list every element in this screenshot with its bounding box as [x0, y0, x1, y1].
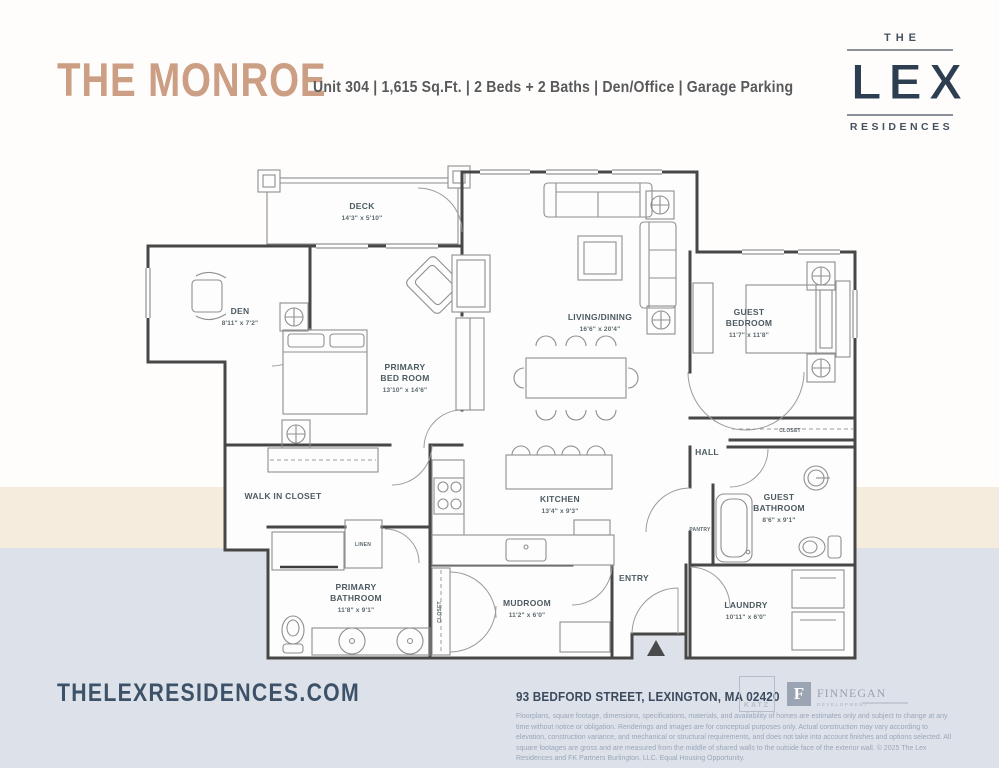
primary-bedroom-label-1: PRIMARY [385, 362, 426, 372]
primary-bed-icon [283, 330, 367, 414]
entry-arrow-icon [647, 640, 665, 656]
kitchen-dims: 13'4" x 9'3" [542, 508, 579, 515]
guest-closet-label: CLOSET [779, 428, 800, 434]
finnegan-f-icon: F [787, 682, 811, 706]
legal-disclaimer: Floorplans, square footage, dimensions, … [516, 712, 954, 765]
pantry-label: PANTRY [689, 527, 711, 533]
guest-wardrobe-icon [693, 283, 713, 353]
guest-bedroom-label-1: GUEST [734, 307, 765, 317]
katz-logo-text: KATZ [740, 702, 774, 709]
deck-dims: 14'3" x 5'10" [342, 215, 383, 222]
walk-in-closet-label: WALK IN CLOSET [245, 491, 322, 501]
floorplan-svg: DECK 14'3" x 5'10" DEN 8'11" x 7'2" PRIM… [0, 0, 999, 768]
primary-bedroom-dims: 13'10" x 14'6" [383, 387, 428, 394]
partner-mark [862, 702, 908, 704]
mudroom-label: MUDROOM [503, 598, 551, 608]
linen-label: LINEN [355, 542, 371, 548]
laundry-label: LAUNDRY [724, 600, 767, 610]
guest-bedroom-label-2: BEDROOM [726, 318, 773, 328]
primary-bathroom-label-1: PRIMARY [336, 582, 377, 592]
hall-label: HALL [695, 447, 719, 457]
guest-bedroom-dims: 11'7" x 11'8" [729, 332, 769, 339]
guest-bathroom-dims: 8'6" x 9'1" [762, 517, 795, 524]
primary-bathroom-dims: 11'8" x 9'1" [338, 607, 375, 614]
finnegan-name: FINNEGAN [817, 686, 886, 701]
den-dims: 8'11" x 7'2" [222, 320, 259, 327]
guest-bathroom-label-2: BATHROOM [753, 503, 805, 513]
entry-label: ENTRY [619, 573, 649, 583]
built-in-cabinet [452, 255, 490, 410]
flyer-page: THE MONROE Unit 304 | 1,615 Sq.Ft. | 2 B… [0, 0, 999, 768]
loveseat-icon [640, 222, 676, 308]
primary-bathroom-label-2: BATHROOM [330, 593, 382, 603]
living-dining-label: LIVING/DINING [568, 312, 632, 322]
living-dining-dims: 16'6" x 20'4" [580, 326, 621, 333]
katz-logo: KATZ [739, 676, 775, 712]
mudroom-closet-label: CLOSET [437, 601, 443, 622]
mudroom-dims: 11'2" x 6'0" [509, 612, 546, 619]
website-url: THELEXRESIDENCES.COM [57, 679, 360, 708]
kitchen-label: KITCHEN [540, 494, 580, 504]
guest-bathroom-label-1: GUEST [764, 492, 795, 502]
den-label: DEN [231, 306, 250, 316]
sofa-icon [544, 183, 652, 217]
laundry-dims: 10'11" x 6'0" [726, 614, 766, 621]
primary-bedroom-label-2: BED ROOM [380, 373, 429, 383]
deck-label: DECK [349, 201, 375, 211]
coffee-table-icon [578, 236, 622, 280]
